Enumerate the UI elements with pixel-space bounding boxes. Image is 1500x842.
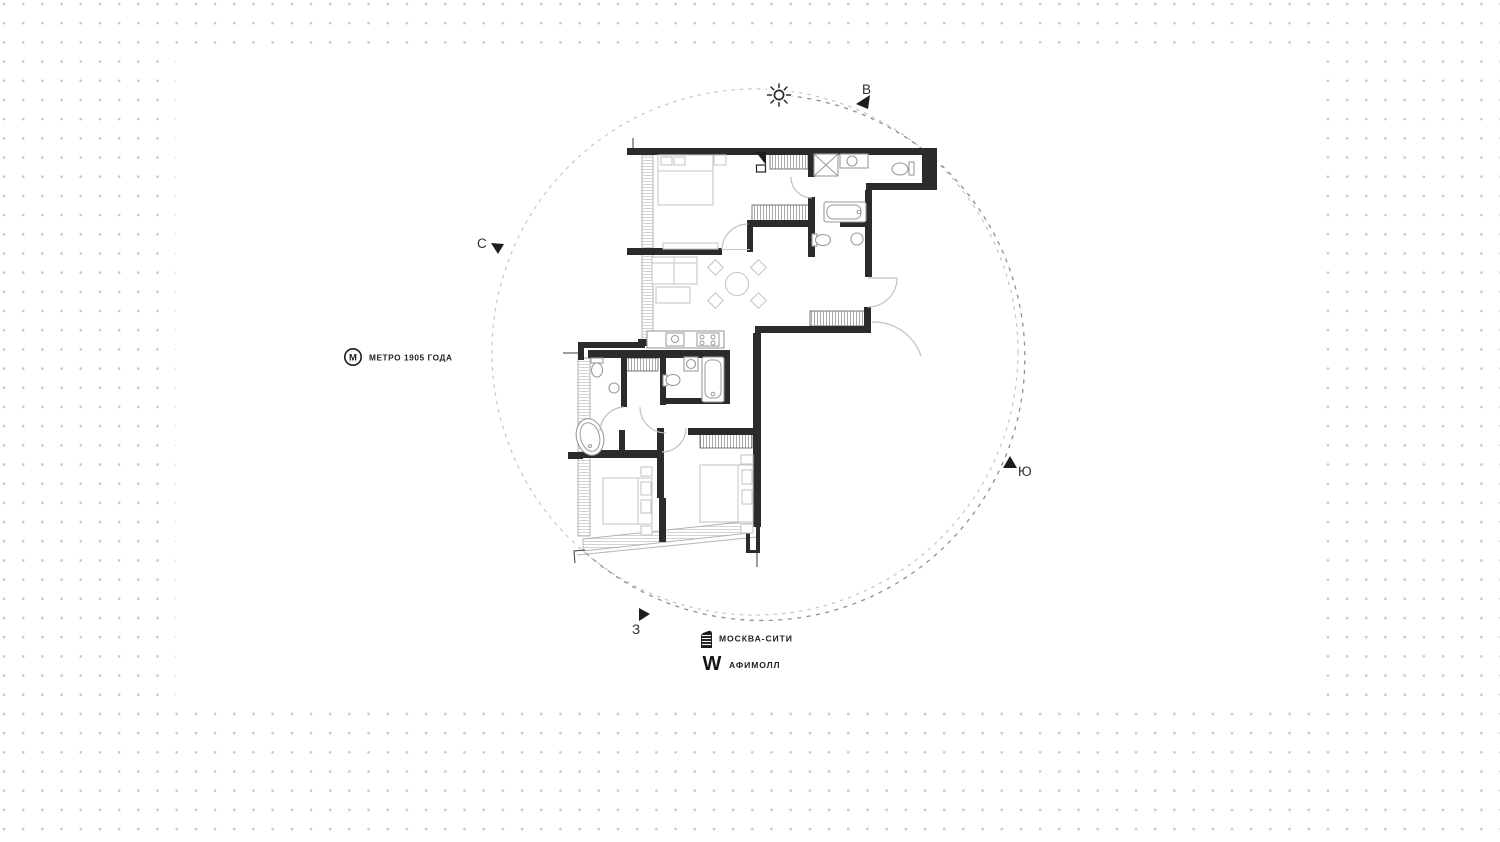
landmark-mall: W АФИМОЛЛ bbox=[703, 653, 781, 675]
sun-icon bbox=[766, 82, 792, 108]
compass-east-label: В bbox=[862, 82, 871, 97]
mall-label: АФИМОЛЛ bbox=[729, 660, 781, 670]
compass-south-arrow-icon bbox=[1003, 456, 1017, 468]
compass-north-label: С bbox=[477, 236, 487, 251]
bedroom-1-furniture bbox=[658, 155, 726, 249]
floor-plan-page: { "compass": { "north_label": "С", "east… bbox=[0, 0, 1500, 842]
kitchen-fixtures bbox=[647, 331, 724, 348]
compass-south-label: Ю bbox=[1018, 464, 1032, 479]
landmark-metro: М МЕТРО 1905 ГОДА bbox=[345, 349, 453, 365]
bathroom-fixtures bbox=[572, 154, 914, 458]
metro-label: МЕТРО 1905 ГОДА bbox=[369, 353, 453, 363]
skyscraper-icon bbox=[701, 631, 712, 648]
compass-west-arrow-icon bbox=[639, 608, 650, 621]
landmark-city: МОСКВА-СИТИ bbox=[701, 631, 793, 648]
compass-east-arrow-icon bbox=[856, 95, 870, 109]
mall-icon-letter: W bbox=[703, 653, 722, 675]
bedroom-3-furniture bbox=[700, 455, 753, 533]
metro-icon-letter: М bbox=[349, 353, 357, 364]
city-label: МОСКВА-СИТИ bbox=[719, 634, 793, 644]
compass-west-label: З bbox=[632, 622, 640, 637]
living-room-furniture bbox=[652, 250, 766, 309]
apartment-floor-plan bbox=[563, 138, 937, 567]
compass-north-arrow-icon bbox=[491, 243, 504, 254]
bedroom-2-furniture bbox=[603, 467, 652, 535]
floor-plan-scene: С В Ю З М МЕТРО 1905 ГОДА МОСКВА-СИТИ W … bbox=[0, 0, 1500, 842]
